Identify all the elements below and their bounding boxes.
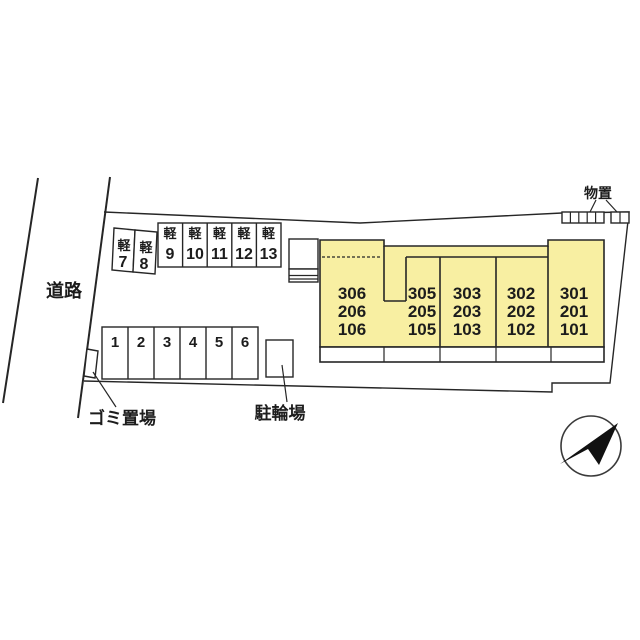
kei-label: 軽 <box>163 226 177 241</box>
unit-306-106: 306 206 106 <box>338 284 366 339</box>
balcony-strip <box>320 347 604 362</box>
room-number: 202 <box>507 302 535 321</box>
parking-number: 3 <box>163 334 171 351</box>
kei-label: 軽 <box>213 226 227 241</box>
room-number: 303 <box>453 284 481 303</box>
kei-label: 軽 <box>262 226 276 241</box>
room-number: 302 <box>507 284 535 303</box>
room-number: 101 <box>560 320 588 339</box>
parking-number: 5 <box>215 334 223 351</box>
room-number: 306 <box>338 284 366 303</box>
room-number: 103 <box>453 320 481 339</box>
storage-shed-row <box>562 212 604 223</box>
kei-number: 13 <box>260 246 278 263</box>
room-number: 201 <box>560 302 588 321</box>
storage-sheds: 物置 <box>562 185 629 223</box>
kei-number: 11 <box>211 246 228 263</box>
unit-305-105: 305 205 105 <box>408 284 436 339</box>
garbage-label: ゴミ置場 <box>88 408 156 428</box>
road-label: 道路 <box>46 280 83 301</box>
site-plan-svg: 道路 物置 306 206 <box>0 0 640 640</box>
kei-label: 軽 <box>237 226 251 241</box>
room-number: 206 <box>338 302 366 321</box>
unit-302-102: 302 202 102 <box>507 284 535 339</box>
kei-number: 7 <box>119 254 128 271</box>
building: 306 206 106 305 205 105 303 203 103 302 … <box>320 240 604 362</box>
storage-label: 物置 <box>584 185 612 201</box>
parking-row: 1 2 3 4 5 6 <box>102 327 258 379</box>
kei-number: 10 <box>186 246 204 263</box>
unit-303-103: 303 203 103 <box>453 284 481 339</box>
bicycle-area: 駐輪場 <box>255 340 306 423</box>
kei-parking-9-13: 軽 9 軽 10 軽 11 軽 12 軽 13 <box>158 223 281 267</box>
kei-label: 軽 <box>117 238 131 253</box>
compass <box>560 416 621 476</box>
north-arrow-icon <box>560 423 618 465</box>
room-number: 301 <box>560 284 588 303</box>
kei-parking-7-8: 軽 7 軽 8 <box>112 228 157 274</box>
kei-number: 8 <box>140 256 149 273</box>
room-number: 105 <box>408 320 436 339</box>
kei-label: 軽 <box>139 240 153 255</box>
kei-label: 軽 <box>188 226 202 241</box>
parking-number: 4 <box>189 334 198 351</box>
kei-number: 12 <box>235 246 253 263</box>
room-number: 305 <box>408 284 436 303</box>
parking-number: 2 <box>137 334 145 351</box>
road-outer-edge-line <box>3 178 38 403</box>
bicycle-label: 駐輪場 <box>255 403 306 423</box>
room-number: 205 <box>408 302 436 321</box>
parking-number: 1 <box>111 334 119 351</box>
storage-leader-line <box>606 200 617 212</box>
unit-301-101: 301 201 101 <box>560 284 588 339</box>
garbage-box <box>84 349 98 378</box>
staircase <box>289 239 318 282</box>
kei-number: 9 <box>166 246 175 263</box>
room-number: 203 <box>453 302 481 321</box>
bicycle-box <box>266 340 293 377</box>
parking-number: 6 <box>241 334 249 351</box>
storage-leader-line <box>590 200 596 212</box>
site-plan-page: 道路 物置 306 206 <box>0 0 640 640</box>
room-number: 102 <box>507 320 535 339</box>
room-number: 106 <box>338 320 366 339</box>
stair-landing <box>289 239 318 269</box>
